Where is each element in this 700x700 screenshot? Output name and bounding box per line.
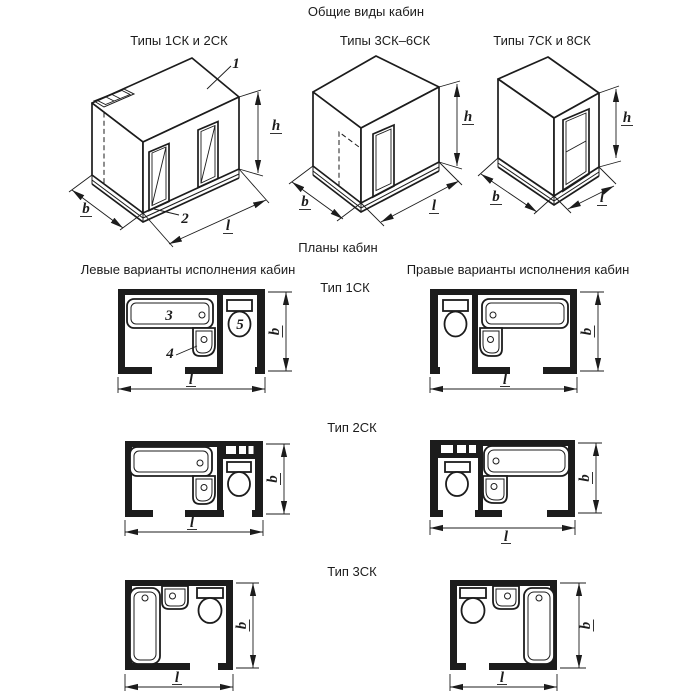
iso-view-title: Типы 3СК–6СК [340,33,431,48]
callout-washbasin-label: 4 [165,346,174,362]
row-label-type-2sk: Тип 2СК [327,420,377,435]
toilet [197,588,223,623]
plan-1sk-right: b l [430,289,604,393]
dim-b: b [267,292,292,371]
dim-l: l [430,520,575,545]
callout-floor-panel: 2 [154,209,189,227]
dim-b: b [577,443,602,513]
washbasin [193,328,215,356]
toilet [227,462,251,496]
dim-b-label: b [577,474,593,482]
vent-block [223,441,255,459]
callout-toilet-label: 5 [236,317,244,333]
bathtub [482,299,568,328]
dim-b: b [579,292,604,371]
row-label-type-1sk: Тип 1СК [320,280,370,295]
dim-l: l [125,515,263,536]
callout-bathtub-label: 3 [164,308,173,324]
dim-l-label: l [190,515,195,531]
dim-b-label: b [579,327,595,335]
washbasin [493,586,519,609]
right-variants-header: Правые варианты исполнения кабин [407,262,630,277]
dim-l-label: l [504,529,509,545]
toilet [443,300,468,337]
plans-section: Планы кабин Левые варианты исполнения ка… [81,240,630,691]
bathtub [524,588,554,664]
dim-l-label: l [432,198,437,214]
washbasin [162,586,188,609]
dim-l: l [430,372,577,393]
general-views-section: Типы 1СК и 2СК [69,33,633,247]
dim-l: l [450,670,557,691]
bathtub [484,446,569,476]
plans-title: Планы кабин [298,240,377,255]
dim-b-label: b [267,327,283,335]
bathtub [130,588,160,664]
drawing-page: Общие виды кабин Типы 1СК и 2СК [0,0,700,700]
plan-1sk-left: 3 4 5 b l [118,289,292,393]
plan-2sk-right: b l [430,440,602,545]
plan-3sk-left: b l [125,580,259,691]
dim-h-label: h [623,110,631,126]
dim-b: b [560,583,594,668]
dim-l: l [125,670,233,691]
dim-b-label: b [82,201,90,217]
dim-b-label: b [578,621,594,629]
vent-block [438,440,478,458]
dim-l-label: l [226,218,231,234]
dim-b: b [234,583,259,668]
iso-view-title: Типы 1СК и 2СК [130,33,228,48]
bathtub [130,447,212,476]
dim-h-label: h [464,109,472,125]
dim-h-label: h [272,118,280,134]
dim-l-label: l [175,670,180,686]
callout-washbasin: 4 [165,346,197,362]
dim-h: h [439,81,474,169]
dim-b-label: b [492,189,500,205]
dim-l: l [118,372,265,393]
page-title: Общие виды кабин [308,4,424,19]
dim-l-label: l [503,372,508,388]
dim-l-label: l [600,190,605,206]
washbasin [483,476,507,503]
dim-b: b [265,444,290,514]
washbasin [193,476,215,504]
callout-floor-label: 2 [180,211,189,227]
toilet [460,588,486,623]
callout-ceiling-label: 1 [232,56,240,72]
toilet [445,462,470,496]
dim-b-label: b [301,194,309,210]
left-variants-header: Левые варианты исполнения кабин [81,262,296,277]
dim-b-label: b [265,475,281,483]
iso-view-types-1sk-2sk: Типы 1СК и 2СК [69,33,282,247]
dim-l-label: l [500,670,505,686]
plan-2sk-left: b l [125,441,290,536]
dim-l-label: l [189,372,194,388]
iso-view-types-7sk-8sk: Типы 7СК и 8СК b l [478,33,633,214]
iso-view-title: Типы 7СК и 8СК [493,33,591,48]
iso-view-types-3sk-6sk: Типы 3СК–6СК b [289,33,474,226]
dim-b-label: b [234,621,250,629]
dim-h: h [599,86,633,167]
plan-3sk-right: b l [450,580,594,691]
dim-h: h [239,90,282,176]
washbasin [480,328,502,356]
row-label-type-3sk: Тип 3СК [327,564,377,579]
gost-cabin-drawing: Общие виды кабин Типы 1СК и 2СК [0,0,700,700]
